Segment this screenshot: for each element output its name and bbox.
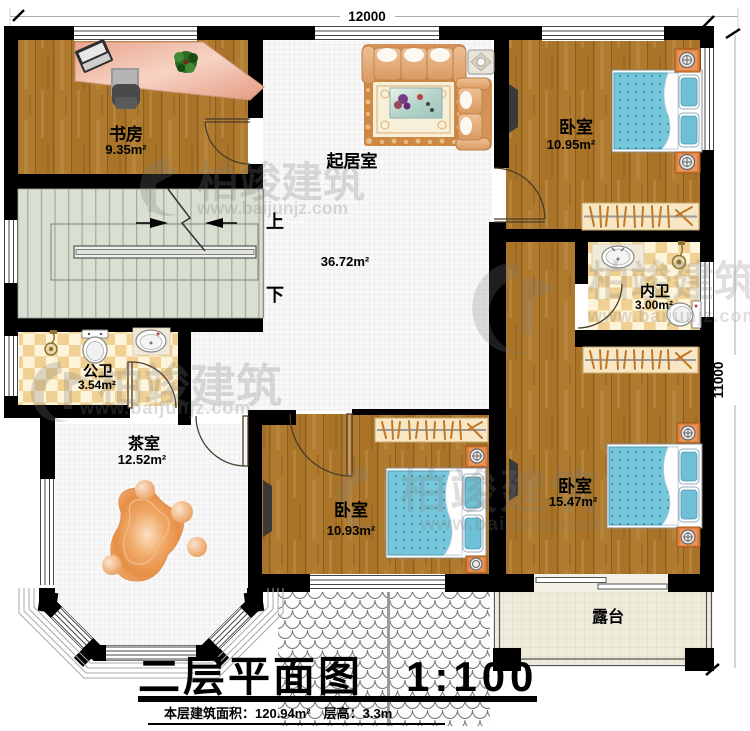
svg-text:本层建筑面积：120.94m² 层高：3.3m: 本层建筑面积：120.94m² 层高：3.3m <box>164 706 392 721</box>
svg-text:1:100: 1:100 <box>406 653 538 700</box>
svg-text:上: 上 <box>266 212 284 232</box>
svg-text:3.54m²: 3.54m² <box>78 378 116 392</box>
svg-text:书房: 书房 <box>109 124 143 144</box>
svg-text:卧室: 卧室 <box>558 476 592 496</box>
svg-text:12000: 12000 <box>348 9 386 24</box>
svg-text:3.00m²: 3.00m² <box>635 298 673 312</box>
svg-text:起居室: 起居室 <box>326 151 378 171</box>
svg-text:36.72m²: 36.72m² <box>321 254 370 269</box>
svg-text:二层平面图: 二层平面图 <box>138 653 363 700</box>
svg-text:11000: 11000 <box>711 362 726 399</box>
svg-text:茶室: 茶室 <box>127 434 160 453</box>
svg-text:12.52m²: 12.52m² <box>118 452 167 467</box>
svg-text:露台: 露台 <box>592 607 624 626</box>
svg-text:10.95m²: 10.95m² <box>547 137 596 152</box>
svg-text:15.47m²: 15.47m² <box>549 494 598 509</box>
svg-text:www.baijunjz.com: www.baijunjz.com <box>79 398 251 418</box>
svg-text:9.35m²: 9.35m² <box>105 142 147 157</box>
svg-text:卧室: 卧室 <box>334 500 368 520</box>
svg-text:卧室: 卧室 <box>559 117 593 137</box>
svg-text:下: 下 <box>266 285 284 305</box>
svg-text:10.93m²: 10.93m² <box>327 523 376 538</box>
svg-text:www.baijunjz.com: www.baijunjz.com <box>419 513 604 535</box>
